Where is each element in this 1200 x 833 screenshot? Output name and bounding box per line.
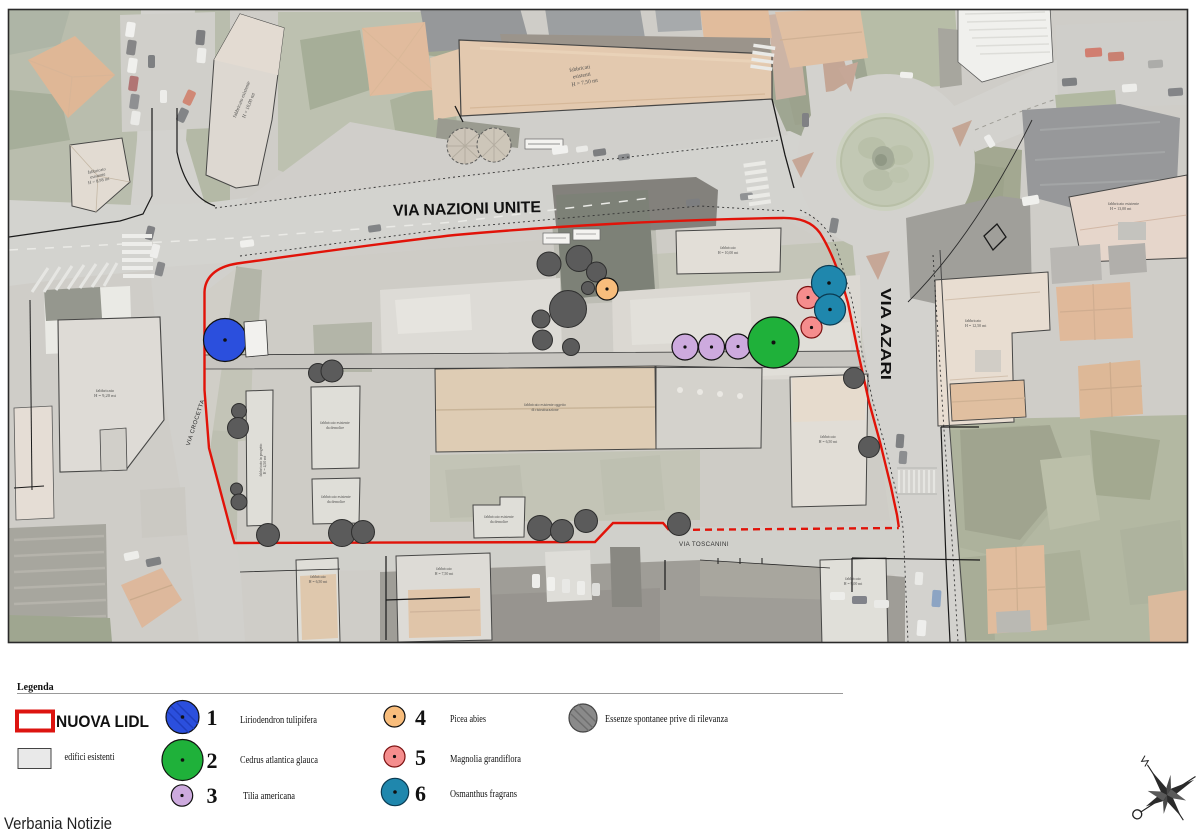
svg-text:Legenda: Legenda (17, 682, 54, 693)
svg-text:Osmanthus fragrans: Osmanthus fragrans (450, 789, 517, 800)
svg-text:Tilia americana: Tilia americana (243, 791, 295, 802)
svg-text:Picea abies: Picea abies (450, 714, 486, 725)
svg-text:edifici esistenti: edifici esistenti (65, 752, 115, 763)
svg-text:5: 5 (415, 745, 426, 770)
svg-text:1: 1 (207, 705, 218, 730)
svg-text:6: 6 (415, 781, 426, 806)
svg-text:4: 4 (415, 705, 426, 730)
svg-text:Liriodendron tulipifera: Liriodendron tulipifera (240, 715, 317, 726)
svg-text:3: 3 (207, 783, 218, 808)
svg-text:Magnolia grandiflora: Magnolia grandiflora (450, 754, 521, 765)
svg-text:VIA AZARI: VIA AZARI (877, 288, 894, 380)
svg-text:NUOVA LIDL: NUOVA LIDL (56, 712, 149, 731)
svg-text:Essenze spontanee prive di ril: Essenze spontanee prive di rilevanza (605, 714, 728, 725)
svg-text:Cedrus atlantica glauca: Cedrus atlantica glauca (240, 755, 318, 766)
svg-text:Verbania Notizie: Verbania Notizie (4, 815, 112, 833)
svg-text:VIA TOSCANINI: VIA TOSCANINI (679, 541, 729, 548)
svg-text:2: 2 (207, 748, 218, 773)
